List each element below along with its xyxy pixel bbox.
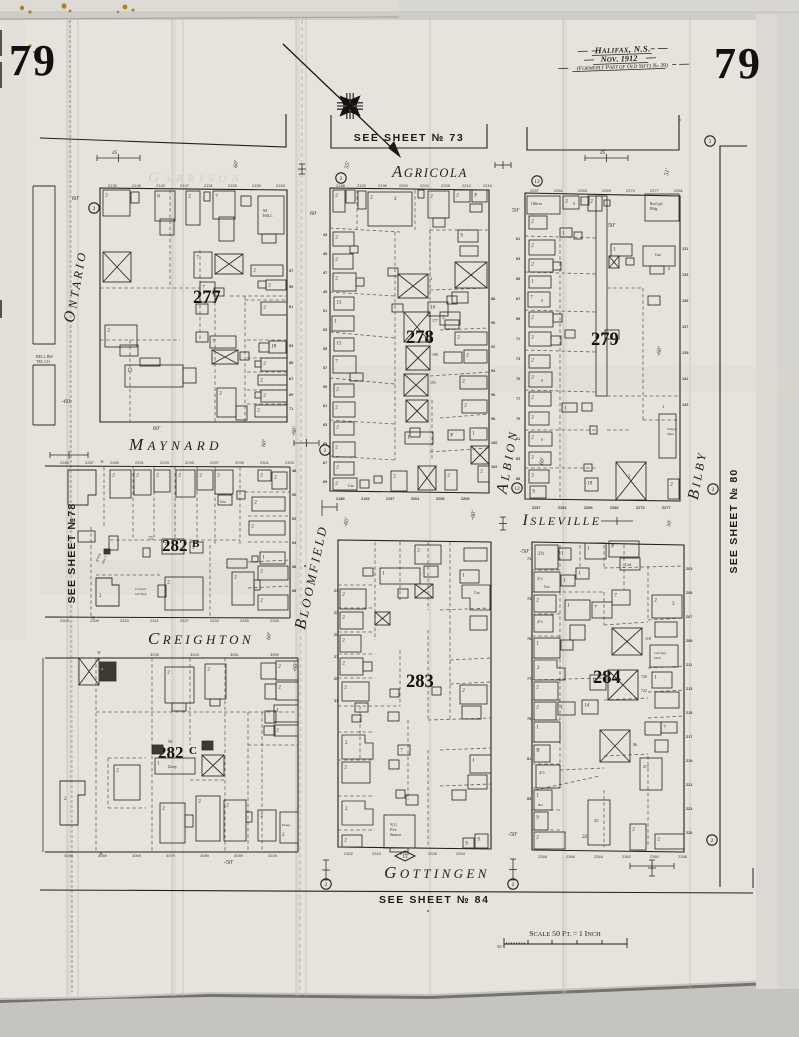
svg-text:2: 2 xyxy=(340,176,343,182)
svg-text:S: S xyxy=(541,379,543,383)
svg-text:2: 2 xyxy=(565,198,568,204)
svg-text:45: 45 xyxy=(112,149,118,156)
svg-text:2: 2 xyxy=(342,637,345,643)
svg-text:2: 2 xyxy=(370,194,373,200)
svg-text:2: 2 xyxy=(457,334,460,340)
svg-text:S: S xyxy=(465,840,468,846)
svg-text:75: 75 xyxy=(516,377,520,381)
svg-text:48: 48 xyxy=(292,469,296,473)
svg-text:-50': -50' xyxy=(508,832,518,838)
svg-text:7: 7 xyxy=(164,541,167,547)
svg-text:2: 2 xyxy=(632,826,635,832)
svg-text:2: 2 xyxy=(344,837,347,843)
svg-text:2: 2 xyxy=(712,487,715,493)
svg-text:2: 2 xyxy=(263,392,266,398)
svg-text:2: 2 xyxy=(178,472,181,478)
svg-text:2: 2 xyxy=(325,882,328,888)
svg-text:SEE SHEET № 80: SEE SHEET № 80 xyxy=(728,469,740,574)
svg-text:SEE SHEET № 84: SEE SHEET № 84 xyxy=(379,894,490,906)
svg-text:2302: 2302 xyxy=(344,851,354,856)
svg-text:2: 2 xyxy=(462,687,465,693)
svg-text:2: 2 xyxy=(709,139,712,145)
svg-text:59: 59 xyxy=(323,385,327,389)
svg-text:65: 65 xyxy=(516,277,520,281)
svg-text:Gro: Gro xyxy=(544,585,550,589)
svg-text:2: 2 xyxy=(344,764,347,770)
svg-text:S: S xyxy=(477,836,480,842)
svg-text:2: 2 xyxy=(335,234,338,240)
svg-text:2299: 2299 xyxy=(235,460,245,465)
svg-text:29: 29 xyxy=(334,677,338,681)
svg-text:2: 2 xyxy=(207,666,210,672)
svg-text:2: 2 xyxy=(167,669,170,675)
svg-text:51: 51 xyxy=(323,309,327,313)
svg-text:50: 50 xyxy=(497,944,502,949)
svg-text:1: 1 xyxy=(560,704,563,710)
svg-text:50: 50 xyxy=(168,739,173,744)
svg-text:2: 2 xyxy=(263,360,266,366)
svg-text:2265: 2265 xyxy=(584,506,592,510)
svg-text:×: × xyxy=(97,649,101,657)
svg-text:283: 283 xyxy=(406,672,434,692)
svg-text:102: 102 xyxy=(491,465,497,469)
svg-text:2197: 2197 xyxy=(386,497,394,501)
svg-text:2151: 2151 xyxy=(204,183,214,188)
svg-text:55: 55 xyxy=(323,347,327,351)
svg-text:1: 1 xyxy=(578,570,581,576)
svg-text:86: 86 xyxy=(633,742,637,747)
svg-text:Grd: Grd xyxy=(625,563,631,567)
svg-text:67: 67 xyxy=(323,461,327,465)
svg-text:2: 2 xyxy=(531,261,534,267)
svg-text:2265: 2265 xyxy=(578,188,588,193)
svg-text:1: 1 xyxy=(157,760,160,766)
svg-text:2: 2 xyxy=(253,267,256,273)
svg-text:2208: 2208 xyxy=(441,183,451,188)
svg-text:50': 50' xyxy=(608,223,616,229)
svg-text:Shed: Shed xyxy=(654,656,661,660)
svg-text:2155: 2155 xyxy=(228,183,238,188)
svg-text:79: 79 xyxy=(516,417,520,421)
svg-text:13: 13 xyxy=(336,299,342,305)
svg-text:S: S xyxy=(573,202,575,206)
svg-text:96: 96 xyxy=(491,393,495,397)
svg-text:2: 2 xyxy=(167,579,170,585)
svg-text:2321: 2321 xyxy=(150,618,160,623)
svg-text:60: 60 xyxy=(310,211,316,217)
svg-text:2: 2 xyxy=(226,802,229,808)
svg-text:2: 2 xyxy=(531,434,534,440)
svg-text:1: 1 xyxy=(382,570,385,576)
svg-text:57: 57 xyxy=(323,366,327,370)
svg-text:61: 61 xyxy=(516,237,520,241)
svg-text:2: 2 xyxy=(462,378,465,384)
svg-text:2: 2 xyxy=(531,414,534,420)
svg-text:2: 2 xyxy=(531,357,534,363)
svg-text:118: 118 xyxy=(645,636,651,641)
svg-text:209: 209 xyxy=(686,639,692,643)
svg-text:2: 2 xyxy=(335,480,338,486)
svg-text:Roof gd: Roof gd xyxy=(650,202,662,206)
svg-text:2: 2 xyxy=(260,597,263,603)
svg-text:2209: 2209 xyxy=(461,497,469,501)
svg-text:1: 1 xyxy=(334,318,337,324)
svg-text:2285: 2285 xyxy=(60,460,70,465)
svg-text:2: 2 xyxy=(335,256,338,262)
svg-text:2: 2 xyxy=(536,834,539,840)
svg-text:2: 2 xyxy=(531,454,534,460)
svg-text:CREIGHTON: CREIGHTON xyxy=(148,629,254,648)
svg-text:63: 63 xyxy=(516,257,520,261)
svg-text:88: 88 xyxy=(491,297,495,301)
svg-text:2½: 2½ xyxy=(538,552,545,557)
svg-text:2192: 2192 xyxy=(357,183,367,188)
svg-text:2: 2 xyxy=(136,472,139,478)
svg-text:2310: 2310 xyxy=(372,851,382,856)
svg-text:1: 1 xyxy=(430,276,432,281)
svg-text:1: 1 xyxy=(654,674,657,680)
svg-text:S: S xyxy=(536,814,539,820)
svg-text:2277: 2277 xyxy=(650,188,660,193)
svg-text:2291: 2291 xyxy=(135,460,145,465)
svg-text:2: 2 xyxy=(276,727,279,733)
svg-text:13: 13 xyxy=(127,367,133,373)
svg-text:75: 75 xyxy=(148,537,154,542)
svg-text:7: 7 xyxy=(594,604,597,610)
svg-text:2: 2 xyxy=(531,242,534,248)
svg-text:7: 7 xyxy=(215,193,218,199)
svg-text:2135: 2135 xyxy=(108,183,118,188)
svg-text:2205: 2205 xyxy=(436,497,444,501)
svg-text:2: 2 xyxy=(217,472,220,478)
svg-text:2281: 2281 xyxy=(674,188,684,193)
svg-text:7: 7 xyxy=(663,724,666,730)
svg-text:71: 71 xyxy=(527,557,531,561)
svg-text:M: M xyxy=(263,208,267,213)
svg-text:S: S xyxy=(460,232,463,238)
svg-text:3109: 3109 xyxy=(268,853,278,858)
svg-text:2: 2 xyxy=(536,704,539,710)
svg-text:P: P xyxy=(474,192,477,198)
svg-text:8: 8 xyxy=(157,193,160,199)
svg-text:85: 85 xyxy=(516,477,520,481)
svg-text:12: 12 xyxy=(534,179,540,185)
svg-text:2: 2 xyxy=(198,798,201,804)
svg-text:2: 2 xyxy=(590,198,593,204)
svg-text:7: 7 xyxy=(212,338,215,344)
svg-text:TEL CO: TEL CO xyxy=(36,359,50,364)
svg-text:7: 7 xyxy=(335,358,338,364)
svg-text:Shed: Shed xyxy=(667,432,674,436)
svg-text:2188: 2188 xyxy=(336,183,346,188)
svg-text:1: 1 xyxy=(472,757,475,763)
svg-text:92: 92 xyxy=(491,345,495,349)
svg-text:S: S xyxy=(541,299,543,303)
svg-text:2216: 2216 xyxy=(483,183,493,188)
svg-text:2143: 2143 xyxy=(156,183,166,188)
svg-text:43: 43 xyxy=(323,233,327,237)
svg-text:2297: 2297 xyxy=(210,460,220,465)
svg-text:2273: 2273 xyxy=(636,506,644,510)
svg-text:3051: 3051 xyxy=(230,652,240,657)
svg-text:2: 2 xyxy=(336,464,339,470)
svg-text:2: 2 xyxy=(657,836,660,842)
svg-text:Gro: Gro xyxy=(474,591,480,595)
svg-text:69: 69 xyxy=(289,393,293,397)
svg-text:2204: 2204 xyxy=(420,183,430,188)
svg-text:63: 63 xyxy=(289,344,293,348)
svg-text:19: 19 xyxy=(592,677,598,683)
svg-text:2: 2 xyxy=(260,568,263,574)
svg-text:2364: 2364 xyxy=(594,854,604,859)
svg-text:50: 50 xyxy=(292,493,296,497)
svg-text:1: 1 xyxy=(536,724,539,730)
svg-text:MAYNARD: MAYNARD xyxy=(128,435,223,454)
svg-text:221: 221 xyxy=(686,783,692,787)
svg-text:3079: 3079 xyxy=(166,853,176,858)
svg-text:2: 2 xyxy=(324,448,327,454)
svg-text:81: 81 xyxy=(516,437,520,441)
svg-text:Drugs: Drugs xyxy=(282,823,291,827)
svg-text:79: 79 xyxy=(9,36,57,85)
svg-text:2163: 2163 xyxy=(276,183,286,188)
svg-text:73: 73 xyxy=(527,597,531,601)
svg-text:1: 1 xyxy=(561,550,564,556)
svg-text:2: 2 xyxy=(417,547,420,553)
svg-text:Gd Shep: Gd Shep xyxy=(135,592,147,596)
svg-text:215: 215 xyxy=(686,711,692,715)
svg-text:2193: 2193 xyxy=(361,497,369,501)
svg-text:2273: 2273 xyxy=(626,188,636,193)
svg-text:2: 2 xyxy=(342,660,345,666)
svg-text:3059: 3059 xyxy=(270,652,280,657)
svg-text:3049: 3049 xyxy=(64,853,74,858)
svg-text:3059: 3059 xyxy=(98,853,108,858)
svg-text:69: 69 xyxy=(516,317,520,321)
svg-text:47: 47 xyxy=(323,271,327,275)
svg-text:2333: 2333 xyxy=(210,618,220,623)
svg-text:Bal: Bal xyxy=(538,803,543,807)
svg-text:2: 2 xyxy=(260,472,263,478)
svg-text:3043: 3043 xyxy=(190,652,200,657)
svg-text:2200: 2200 xyxy=(399,183,409,188)
svg-text:7: 7 xyxy=(202,284,205,290)
svg-text:Dairy: Dairy xyxy=(167,765,177,769)
svg-text:2: 2 xyxy=(268,282,271,288)
svg-text:2339: 2339 xyxy=(240,618,250,623)
svg-text:2: 2 xyxy=(531,472,534,478)
svg-text:98: 98 xyxy=(491,417,495,421)
svg-text:1: 1 xyxy=(276,707,279,713)
svg-text:2269: 2269 xyxy=(602,188,612,193)
svg-text:1: 1 xyxy=(613,246,616,252)
svg-text:-60:: -60: xyxy=(62,399,72,405)
svg-text:2: 2 xyxy=(536,684,539,690)
svg-text:207: 207 xyxy=(686,615,692,619)
svg-text:2289: 2289 xyxy=(110,460,120,465)
svg-text:NOV. 1912: NOV. 1912 xyxy=(600,54,638,64)
svg-text:2: 2 xyxy=(480,468,483,474)
svg-text:71: 71 xyxy=(289,407,293,411)
svg-text:2: 2 xyxy=(257,407,260,413)
svg-text:720: 720 xyxy=(641,674,647,679)
svg-text:139: 139 xyxy=(682,351,688,355)
svg-text:2139: 2139 xyxy=(132,183,142,188)
svg-text:2201: 2201 xyxy=(411,497,419,501)
svg-text:2: 2 xyxy=(335,192,338,198)
svg-text:SCALE 50 FT. = 1 INCH: SCALE 50 FT. = 1 INCH xyxy=(529,929,601,938)
svg-text:205: 205 xyxy=(686,591,692,595)
svg-text:SEE SHEET № 73: SEE SHEET № 73 xyxy=(354,132,465,144)
svg-text:1: 1 xyxy=(462,572,465,578)
svg-text:61: 61 xyxy=(289,305,293,309)
svg-text:190: 190 xyxy=(432,352,438,357)
svg-text:1: 1 xyxy=(262,554,265,560)
svg-text:2: 2 xyxy=(456,192,459,198)
svg-text:219: 219 xyxy=(686,759,692,763)
svg-text:-50': -50' xyxy=(224,860,234,866)
svg-text:2½: 2½ xyxy=(537,576,543,581)
svg-text:S: S xyxy=(541,438,543,442)
svg-text:2318: 2318 xyxy=(400,851,410,856)
svg-text:2: 2 xyxy=(442,314,445,320)
svg-text:2: 2 xyxy=(234,574,237,580)
svg-text:2287: 2287 xyxy=(85,460,95,465)
svg-text:×: × xyxy=(100,458,104,466)
svg-text:83: 83 xyxy=(516,457,520,461)
svg-text:2: 2 xyxy=(512,882,515,888)
svg-text:25: 25 xyxy=(334,633,338,637)
svg-text:2: 2 xyxy=(342,614,345,620)
svg-text:131: 131 xyxy=(682,247,688,251)
svg-text:2: 2 xyxy=(464,402,467,408)
svg-text:2: 2 xyxy=(447,472,450,478)
svg-text:53: 53 xyxy=(323,328,327,332)
svg-text:2: 2 xyxy=(430,193,433,199)
svg-text:2: 2 xyxy=(393,473,396,479)
svg-text:1: 1 xyxy=(531,278,534,284)
svg-text:23: 23 xyxy=(334,611,338,615)
svg-text:-50': -50' xyxy=(520,549,530,555)
svg-text:GOTTINGEN: GOTTINGEN xyxy=(384,863,490,882)
svg-text:2334: 2334 xyxy=(456,851,466,856)
svg-text:2309: 2309 xyxy=(90,618,100,623)
svg-text:2257: 2257 xyxy=(530,188,540,193)
svg-text:2: 2 xyxy=(342,591,345,597)
svg-text:69: 69 xyxy=(323,480,327,484)
svg-text:133: 133 xyxy=(682,273,688,277)
svg-text:2360: 2360 xyxy=(650,854,660,859)
svg-text:HALL: HALL xyxy=(263,214,273,218)
svg-text:16: 16 xyxy=(430,304,436,310)
svg-text:211: 211 xyxy=(686,663,692,667)
svg-text:2345: 2345 xyxy=(270,618,280,623)
svg-text:2: 2 xyxy=(531,218,534,224)
svg-text:2: 2 xyxy=(260,812,263,818)
svg-text:2303: 2303 xyxy=(60,618,70,623)
svg-text:57: 57 xyxy=(289,269,293,273)
svg-text:59: 59 xyxy=(289,285,293,289)
svg-text:50': 50' xyxy=(512,208,520,214)
svg-text:65: 65 xyxy=(289,361,293,365)
svg-text:191: 191 xyxy=(430,380,436,385)
svg-text:2277: 2277 xyxy=(662,506,670,510)
svg-text:2: 2 xyxy=(711,838,714,844)
svg-text:S: S xyxy=(668,267,670,271)
svg-text:2: 2 xyxy=(536,597,539,603)
svg-text:14: 14 xyxy=(584,702,590,708)
svg-text:2: 2 xyxy=(278,684,281,690)
svg-text:2: 2 xyxy=(116,767,119,773)
svg-text:1: 1 xyxy=(562,230,565,236)
svg-text:2: 2 xyxy=(105,192,108,198)
svg-text:2: 2 xyxy=(263,304,266,310)
svg-text:P: P xyxy=(611,543,614,549)
svg-text:C: C xyxy=(189,745,197,757)
svg-text:223: 223 xyxy=(686,807,692,811)
svg-text:177: 177 xyxy=(432,318,438,323)
svg-text:2301: 2301 xyxy=(260,460,270,465)
svg-text:18: 18 xyxy=(271,343,277,349)
svg-text:2: 2 xyxy=(199,472,202,478)
svg-text:1: 1 xyxy=(567,602,570,608)
svg-text:3099: 3099 xyxy=(234,853,244,858)
svg-text:2: 2 xyxy=(531,374,534,380)
svg-text:2: 2 xyxy=(336,424,339,430)
svg-text:Gro: Gro xyxy=(348,484,354,488)
svg-text:2189: 2189 xyxy=(336,497,344,501)
svg-text:2½: 2½ xyxy=(643,764,649,769)
svg-text:135: 135 xyxy=(682,299,688,303)
svg-text:3035: 3035 xyxy=(150,652,160,657)
svg-text:79: 79 xyxy=(527,717,531,721)
svg-text:1: 1 xyxy=(587,545,590,551)
svg-text:67: 67 xyxy=(516,297,520,301)
svg-text:2: 2 xyxy=(344,684,347,690)
svg-text:2: 2 xyxy=(219,390,222,396)
svg-text:2: 2 xyxy=(93,206,96,212)
svg-text:143: 143 xyxy=(682,403,688,407)
svg-text:49: 49 xyxy=(323,290,327,294)
svg-text:75: 75 xyxy=(527,637,531,641)
svg-text:2326: 2326 xyxy=(428,851,438,856)
svg-text:2½: 2½ xyxy=(537,619,543,624)
svg-text:2: 2 xyxy=(336,386,339,392)
svg-text:2: 2 xyxy=(670,481,673,487)
svg-text:60': 60' xyxy=(72,196,80,202)
svg-text:1: 1 xyxy=(662,404,664,409)
svg-text:2269: 2269 xyxy=(610,506,618,510)
svg-text:45: 45 xyxy=(323,252,327,256)
svg-text:2327: 2327 xyxy=(180,618,190,623)
svg-text:71: 71 xyxy=(516,337,520,341)
svg-text:31: 31 xyxy=(334,699,338,703)
svg-text:3069: 3069 xyxy=(132,853,142,858)
svg-text:56: 56 xyxy=(292,565,296,569)
svg-text:2: 2 xyxy=(260,377,263,383)
svg-text:1: 1 xyxy=(563,577,566,583)
svg-text:2261: 2261 xyxy=(554,188,564,193)
svg-text:52: 52 xyxy=(292,517,296,521)
svg-text:Offices: Offices xyxy=(531,202,543,206)
svg-text:1: 1 xyxy=(564,405,567,411)
svg-text:83: 83 xyxy=(527,797,531,801)
svg-text:2: 2 xyxy=(654,597,657,603)
svg-text:3089: 3089 xyxy=(200,853,210,858)
svg-text:2: 2 xyxy=(112,472,115,478)
svg-text:77: 77 xyxy=(527,677,531,681)
svg-text:Carriage: Carriage xyxy=(654,651,667,655)
